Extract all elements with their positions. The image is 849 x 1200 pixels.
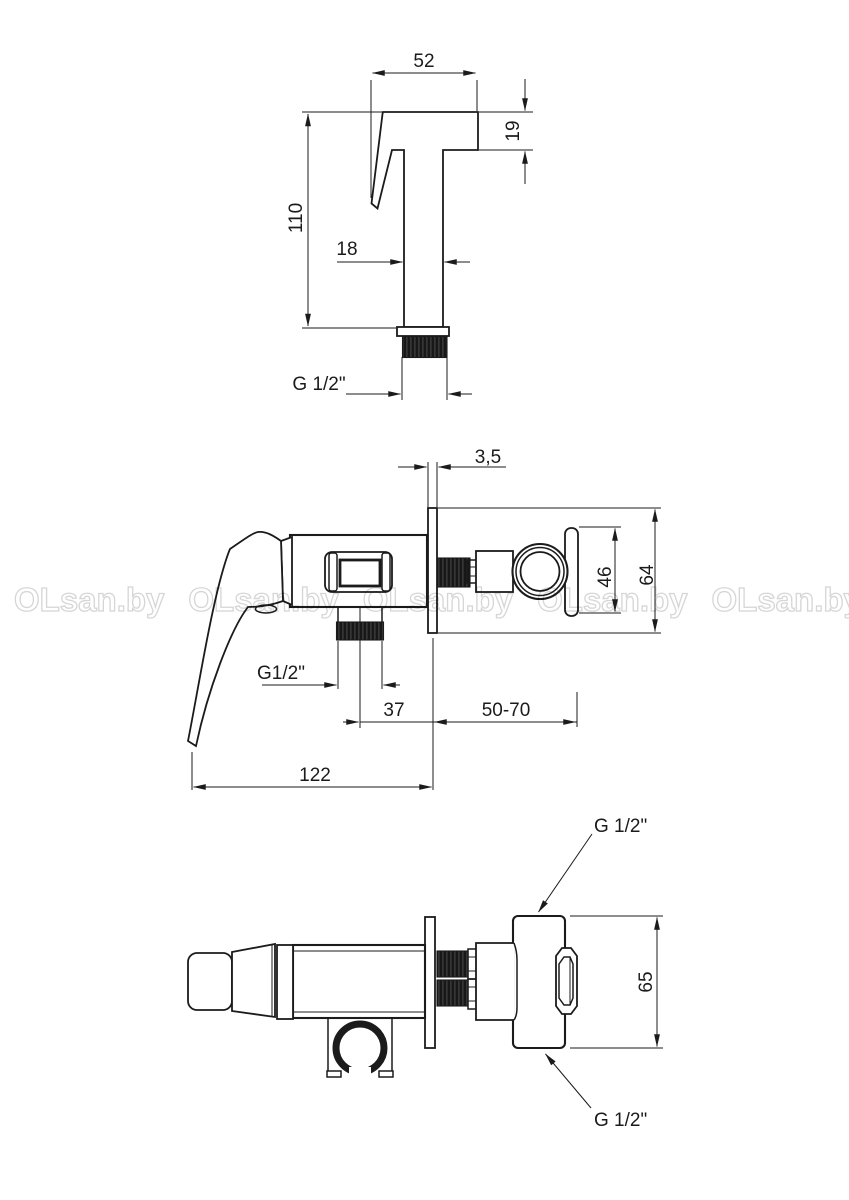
mixer-body-top [293,945,425,1018]
dim-inlet-thread-top: G 1/2" [594,816,647,837]
hand-shower-body [372,112,479,327]
dim-head-width: 52 [413,51,434,72]
dim-block-height: 65 [636,971,657,992]
technical-drawing: 52 19 110 18 G 1/2" [0,0,849,1200]
drawing-canvas: 52 19 110 18 G 1/2" [0,0,849,1200]
hand-shower-flange [397,327,449,336]
dim-body-width: 18 [336,239,357,260]
dim-eccentric-height: 46 [595,566,616,587]
hand-shower-view: 52 19 110 18 G 1/2" [286,51,533,400]
mixer-lever [188,532,283,746]
dim-inlet-thread-bottom: G 1/2" [594,1110,647,1131]
hand-shower-thread [403,337,448,358]
wall-plate-top [425,917,435,1048]
lever-hub-top [277,945,293,1019]
dim-wall-to-inlet: 50-70 [482,700,531,721]
outlet-thread [337,622,384,640]
dim-total-height: 110 [286,203,307,233]
union-piece-top [476,943,514,1020]
dim-plate-height: 64 [637,564,658,586]
union-nut [476,551,513,592]
dim-hand-shower-thread: G 1/2" [292,374,345,395]
dim-head-height: 19 [503,120,524,141]
ring-nut-inner [521,552,560,591]
holder-hook [336,1024,384,1072]
lever-taper-top [232,944,275,1017]
lever-cap-top [188,953,232,1010]
inlet-thread [437,558,470,587]
inlet-rod-bottom [437,980,468,1006]
dim-outlet-to-wall: 37 [383,700,404,721]
mixer-side-view: 3,5 46 64 G1/2" 37 50-70 122 [188,447,661,790]
inlet-rod-top [437,951,468,977]
holder-window [340,560,380,586]
dim-total-length: 122 [299,765,331,786]
dim-outlet-thread: G1/2" [257,663,305,684]
dim-plate-thickness: 3,5 [475,447,501,468]
mixer-top-view: G 1/2" 65 G 1/2" [188,816,663,1131]
wall-plate [428,508,437,633]
